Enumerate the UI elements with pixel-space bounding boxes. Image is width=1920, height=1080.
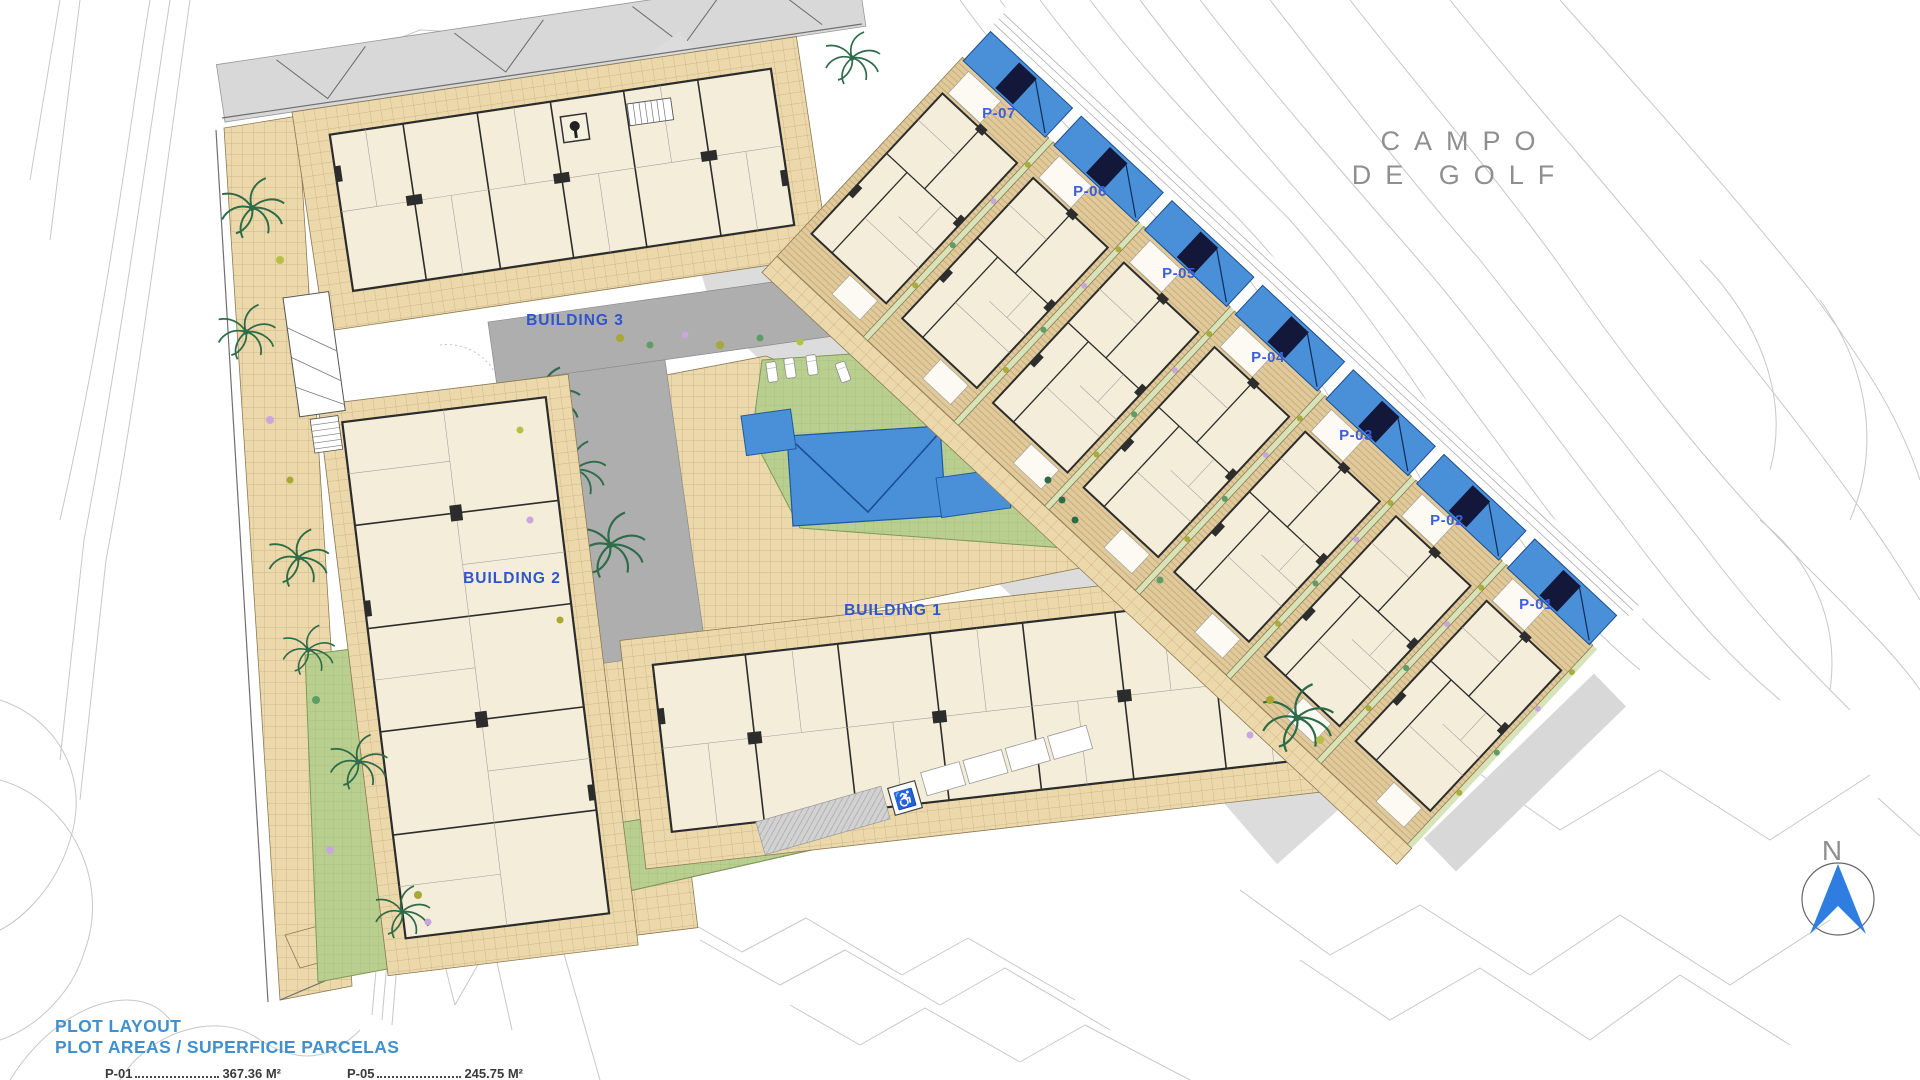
legend-row-p01: P-01 367.36 M² xyxy=(105,1066,281,1080)
villa-label-p02: P-02 xyxy=(1430,512,1464,529)
kids-pool-west xyxy=(741,409,796,456)
villa-label-p06: P-06 xyxy=(1073,183,1107,200)
legend: PLOT LAYOUT PLOT AREAS / SUPERFICIE PARC… xyxy=(55,1016,675,1080)
villa-label-p05: P-05 xyxy=(1162,265,1196,282)
villa-label-p03: P-03 xyxy=(1339,427,1373,444)
building-1-label: BUILDING 1 xyxy=(844,602,942,619)
site-plan-drawing: ♿ BUILDING 3 BUILDING 2 BUILDING 1 P-07 … xyxy=(0,0,1920,1080)
villa-label-p07: P-07 xyxy=(982,105,1016,122)
villa-label-p01: P-01 xyxy=(1519,596,1553,613)
plot-area: 367.36 M² xyxy=(222,1066,281,1080)
north-arrow: N xyxy=(1802,835,1874,935)
plot-id: P-05 xyxy=(347,1066,374,1080)
plot-area: 245.75 M² xyxy=(464,1066,523,1080)
north-label: N xyxy=(1822,835,1842,866)
golf-course-label-line2: DE GOLF xyxy=(1352,160,1569,190)
north-arrow-pointer xyxy=(1810,864,1866,934)
legend-subtitle: PLOT AREAS / SUPERFICIE PARCELAS xyxy=(55,1037,675,1059)
building-3-label: BUILDING 3 xyxy=(526,312,624,329)
legend-row-p05: P-05 245.75 M² xyxy=(347,1066,523,1080)
plot-id: P-01 xyxy=(105,1066,132,1080)
villa-label-p04: P-04 xyxy=(1251,349,1285,366)
dotted-leader xyxy=(135,1075,219,1078)
legend-rows: P-01 367.36 M² P-05 245.75 M² xyxy=(55,1066,675,1080)
dotted-leader xyxy=(377,1075,461,1078)
utility-kiosk xyxy=(560,113,589,142)
building-2-label: BUILDING 2 xyxy=(463,570,561,587)
legend-title: PLOT LAYOUT xyxy=(55,1016,675,1037)
site-plan-page: ♿ BUILDING 3 BUILDING 2 BUILDING 1 P-07 … xyxy=(0,0,1920,1080)
golf-course-label-line1: CAMPO xyxy=(1380,126,1549,156)
